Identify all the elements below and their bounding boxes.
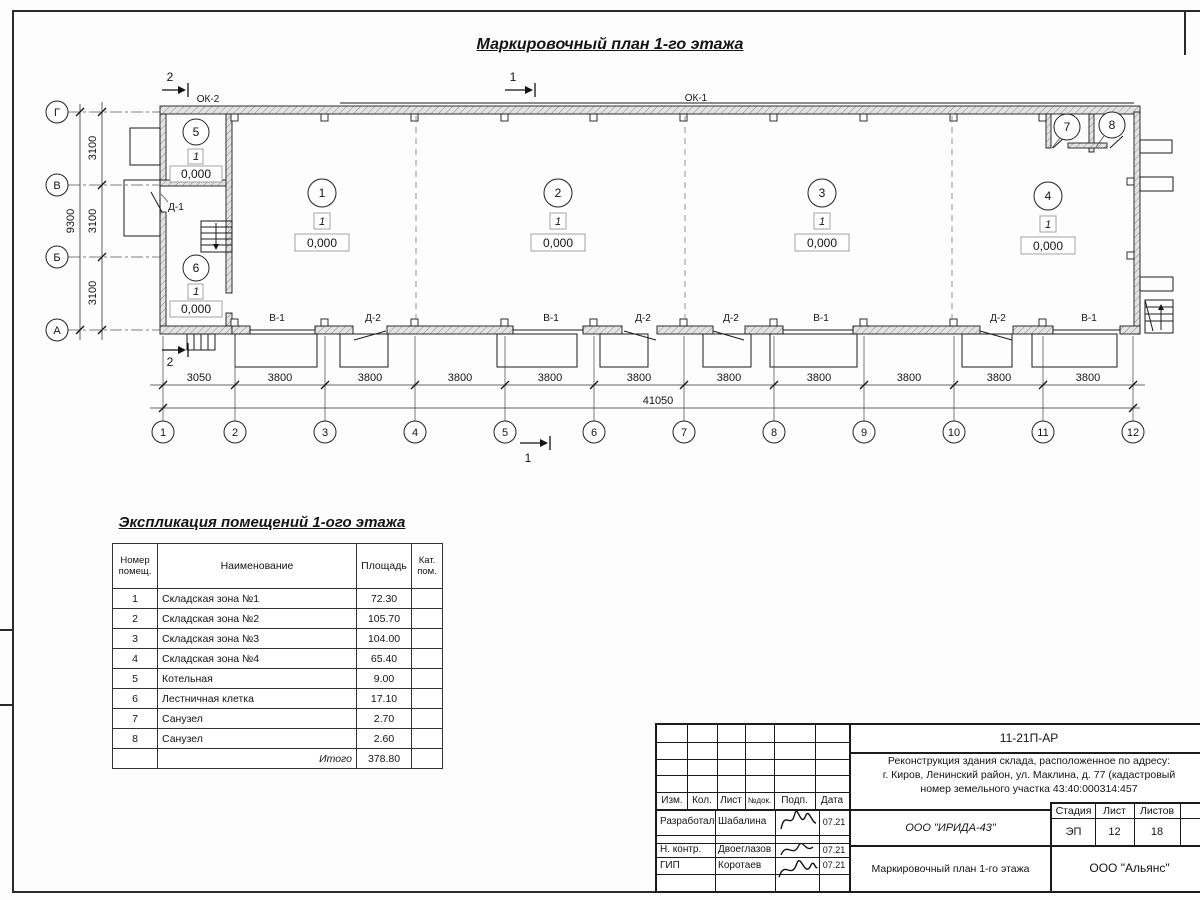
room-2-level: 0,000 xyxy=(543,236,573,250)
room-marker-6: 6 1 0,000 xyxy=(170,255,222,317)
tb-date-2: 07.21 xyxy=(819,843,849,857)
axis-6: 6 xyxy=(591,427,597,439)
label-v1-2: В-1 xyxy=(543,313,559,324)
room-1-floor: 1 xyxy=(319,216,325,228)
dim-3800-4: 3800 xyxy=(538,372,562,384)
cell-name: Санузел xyxy=(158,729,357,749)
total-value: 378.80 xyxy=(357,749,412,769)
label-ok1: ОК-1 xyxy=(685,93,708,104)
label-v1-1: В-1 xyxy=(269,313,285,324)
room-2-floor: 1 xyxy=(555,216,561,228)
cell-area: 17.10 xyxy=(357,689,412,709)
room-6-floor: 1 xyxy=(193,286,199,298)
label-d1: Д-1 xyxy=(168,202,184,213)
tb-company: ООО "ИРИДА-43" xyxy=(851,811,1050,845)
cell-cat xyxy=(412,589,443,609)
stairs-exterior-right xyxy=(1145,300,1173,333)
cell-num: 8 xyxy=(113,729,158,749)
tb-header-list: Лист xyxy=(717,792,745,809)
signature-1 xyxy=(775,805,819,835)
tb-role-3: ГИП xyxy=(657,857,718,874)
tb-name-2: Двоеглазов xyxy=(715,843,778,857)
room-3-level: 0,000 xyxy=(807,236,837,250)
dim-3800-6: 3800 xyxy=(717,372,741,384)
building-walls xyxy=(151,103,1140,334)
dim-3800-8: 3800 xyxy=(897,372,921,384)
cell-area: 2.60 xyxy=(357,729,412,749)
label-v1-4: В-1 xyxy=(1081,313,1097,324)
tb-name-1: Шабалина xyxy=(715,809,778,835)
tb-sheet-header: Лист xyxy=(1095,804,1134,818)
cell-name: Складская зона №4 xyxy=(158,649,357,669)
room-4-level: 0,000 xyxy=(1033,239,1063,253)
room-marker-5: 5 1 0,000 xyxy=(170,119,222,182)
cell-name: Складская зона №2 xyxy=(158,609,357,629)
tb-header-kol: Кол. xyxy=(687,792,717,809)
dim-3100-3: 3100 xyxy=(87,281,99,305)
cell-cat xyxy=(412,709,443,729)
section-1-top: 1 xyxy=(510,70,517,84)
columns xyxy=(231,114,1134,326)
cell-name: Лестничная клетка xyxy=(158,689,357,709)
dimension-lines xyxy=(76,102,1145,412)
table-row: 5Котельная9.00 xyxy=(113,669,443,689)
cell-num: 3 xyxy=(113,629,158,649)
floor-plan: 3050 3800 3800 3800 3800 3800 3800 3800 … xyxy=(0,0,1200,480)
table-row: 8Санузел2.60 xyxy=(113,729,443,749)
label-d2-2: Д-2 xyxy=(635,313,651,324)
room-marker-1: 1 1 0,000 xyxy=(295,179,349,251)
axis-5: 5 xyxy=(502,427,508,439)
axis-1: 1 xyxy=(160,427,166,439)
cell-area: 65.40 xyxy=(357,649,412,669)
room-2-num: 2 xyxy=(555,186,562,200)
zone-separators xyxy=(416,116,952,326)
signature-2 xyxy=(773,839,819,885)
dim-labels-bottom: 3050 3800 3800 3800 3800 3800 3800 3800 … xyxy=(187,372,1100,407)
col-header-name: Наименование xyxy=(158,544,357,589)
axis-b: Б xyxy=(53,252,60,264)
dim-3800-10: 3800 xyxy=(1076,372,1100,384)
cell-num: 6 xyxy=(113,689,158,709)
tb-sheets-header: Листов xyxy=(1134,804,1180,818)
room-3-num: 3 xyxy=(819,186,826,200)
cell-num: 5 xyxy=(113,669,158,689)
tb-date-3: 07.21 xyxy=(819,857,849,874)
tb-role-2: Н. контр. xyxy=(657,843,718,857)
tb-header-izm: Изм. xyxy=(657,792,687,809)
room-6-num: 6 xyxy=(193,261,200,275)
tb-date-1: 07.21 xyxy=(819,809,849,835)
table-row: 6Лестничная клетка17.10 xyxy=(113,689,443,709)
axis-9: 9 xyxy=(861,427,867,439)
title-block: Изм. Кол. Лист №док. Подп. Дата Разработ… xyxy=(655,723,1200,893)
tb-role-1: Разработал xyxy=(657,809,718,835)
room-marker-8: 8 xyxy=(1096,112,1125,147)
axis-a: А xyxy=(53,325,61,337)
axis-4: 4 xyxy=(412,427,418,439)
cell-num: 1 xyxy=(113,589,158,609)
schedule-title: Экспликация помещений 1-ого этажа xyxy=(112,514,412,531)
section-2-bottom: 2 xyxy=(167,355,174,369)
tb-contractor: ООО "Альянс" xyxy=(1052,847,1200,891)
tb-header-ndok: №док. xyxy=(745,792,774,809)
dim-3100-2: 3100 xyxy=(87,209,99,233)
dim-3800-1: 3800 xyxy=(268,372,292,384)
cell-cat xyxy=(412,729,443,749)
schedule-header-row: Номер помещ. Наименование Площадь Кат. п… xyxy=(113,544,443,589)
room-marker-3: 3 1 0,000 xyxy=(795,179,849,251)
label-ok2: ОК-2 xyxy=(197,94,220,105)
section-markers: 2 2 1 1 xyxy=(162,70,550,465)
axis-g: Г xyxy=(54,107,60,119)
room-4-num: 4 xyxy=(1045,189,1052,203)
room-marker-4: 4 1 0,000 xyxy=(1021,182,1075,254)
axis-12: 12 xyxy=(1127,427,1139,439)
frame-tick-1 xyxy=(0,629,12,631)
tb-name-3: Коротаев xyxy=(715,857,778,874)
room-5-floor: 1 xyxy=(193,151,199,163)
tb-sheet-title: Маркировочный план 1-го этажа xyxy=(851,847,1050,891)
dim-3800-7: 3800 xyxy=(807,372,831,384)
cell-name: Котельная xyxy=(158,669,357,689)
cell-num: 7 xyxy=(113,709,158,729)
table-row: 4Складская зона №465.40 xyxy=(113,649,443,669)
tb-sheets-value: 18 xyxy=(1134,819,1180,845)
dim-labels-left: 3100 3100 3100 9300 xyxy=(65,136,99,305)
label-d2-4: Д-2 xyxy=(990,313,1006,324)
label-d2-3: Д-2 xyxy=(723,313,739,324)
tb-header-data: Дата xyxy=(815,792,849,809)
tb-project-line1: Реконструкция здания склада, расположенн… xyxy=(851,754,1200,768)
axis-v: В xyxy=(53,180,60,192)
room-5-num: 5 xyxy=(193,125,200,139)
axis-10: 10 xyxy=(948,427,960,439)
dim-3800-5: 3800 xyxy=(627,372,651,384)
col-header-area: Площадь xyxy=(357,544,412,589)
room-5-level: 0,000 xyxy=(181,167,211,181)
tb-project-line3: номер земельного участка 43:40:000314:45… xyxy=(851,782,1200,796)
total-label: Итого xyxy=(158,749,357,769)
room-8-num: 8 xyxy=(1109,118,1116,132)
room-6-level: 0,000 xyxy=(181,302,211,316)
cell-cat xyxy=(412,629,443,649)
label-d2-1: Д-2 xyxy=(365,313,381,324)
cell-cat xyxy=(412,649,443,669)
tb-sheet-value: 12 xyxy=(1095,819,1134,845)
table-row: 7Санузел2.70 xyxy=(113,709,443,729)
dim-3050: 3050 xyxy=(187,372,211,384)
cell-name: Санузел xyxy=(158,709,357,729)
cell-area: 72.30 xyxy=(357,589,412,609)
cell-name: Складская зона №1 xyxy=(158,589,357,609)
cell-cat xyxy=(412,609,443,629)
table-row: 1Складская зона №172.30 xyxy=(113,589,443,609)
cell-area: 105.70 xyxy=(357,609,412,629)
tb-stage-header: Стадия xyxy=(1052,804,1095,818)
cell-area: 9.00 xyxy=(357,669,412,689)
axis-circles-bottom: 1 2 3 4 5 6 7 8 9 10 11 12 xyxy=(152,421,1144,443)
label-v1-3: В-1 xyxy=(813,313,829,324)
room-7-num: 7 xyxy=(1064,120,1071,134)
room-schedule-table: Номер помещ. Наименование Площадь Кат. п… xyxy=(112,543,443,769)
section-1-bottom: 1 xyxy=(525,451,532,465)
col-header-category: Кат. пом. xyxy=(412,544,443,589)
room-3-floor: 1 xyxy=(819,216,825,228)
cell-area: 104.00 xyxy=(357,629,412,649)
table-row: 3Складская зона №3104.00 xyxy=(113,629,443,649)
cell-cat xyxy=(412,689,443,709)
axis-8: 8 xyxy=(771,427,777,439)
axis-2: 2 xyxy=(232,427,238,439)
dim-3800-2: 3800 xyxy=(358,372,382,384)
room-1-num: 1 xyxy=(319,186,326,200)
table-row: 2Складская зона №2105.70 xyxy=(113,609,443,629)
col-header-number: Номер помещ. xyxy=(113,544,158,589)
axis-7: 7 xyxy=(681,427,687,439)
frame-tick-2 xyxy=(0,704,12,706)
tb-project-line2: г. Киров, Ленинский район, ул. Маклина, … xyxy=(851,768,1200,782)
cell-name: Складская зона №3 xyxy=(158,629,357,649)
cell-num xyxy=(113,749,158,769)
cell-area: 2.70 xyxy=(357,709,412,729)
room-4-floor: 1 xyxy=(1045,219,1051,231)
cell-num: 2 xyxy=(113,609,158,629)
dim-3100-1: 3100 xyxy=(87,136,99,160)
cell-num: 4 xyxy=(113,649,158,669)
room-markers: 1 1 0,000 2 1 0,000 3 1 0,000 4 1 0,000 … xyxy=(170,112,1125,317)
dim-3800-9: 3800 xyxy=(987,372,1011,384)
dim-total-9300: 9300 xyxy=(65,209,77,233)
dim-3800-3: 3800 xyxy=(448,372,472,384)
axis-3: 3 xyxy=(322,427,328,439)
dim-total-41050: 41050 xyxy=(643,395,674,407)
room-1-level: 0,000 xyxy=(307,236,337,250)
section-2-top: 2 xyxy=(167,70,174,84)
axis-11: 11 xyxy=(1037,427,1048,439)
room-marker-2: 2 1 0,000 xyxy=(531,179,585,251)
cell-cat xyxy=(412,749,443,769)
tb-doc-number: 11-21П-АР xyxy=(851,725,1200,752)
tb-stage-value: ЭП xyxy=(1052,819,1095,845)
schedule-total-row: Итого 378.80 xyxy=(113,749,443,769)
cell-cat xyxy=(412,669,443,689)
drawing-sheet: { "title": "Маркировочный план 1-го этаж… xyxy=(0,0,1200,900)
